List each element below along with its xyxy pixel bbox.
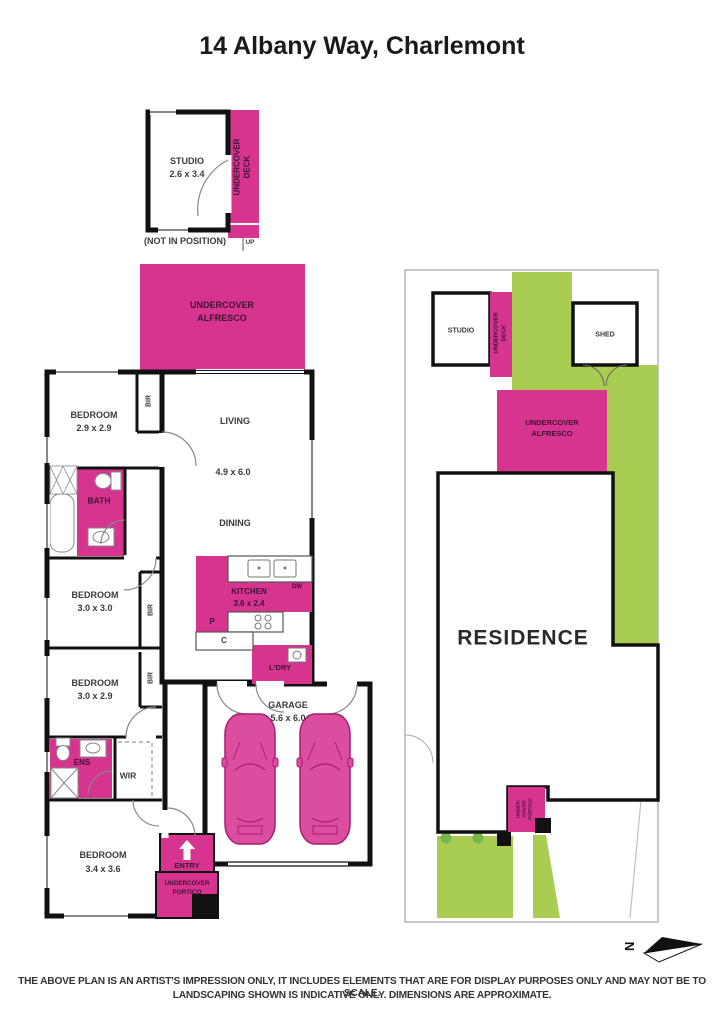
bir3-label: BIR [146,672,155,684]
entry-label: ENTRY [174,861,199,871]
site-studio-label: STUDIO [448,326,474,335]
portico-label: UNDERCOVER [165,880,210,888]
site-portico-label: UNDER- COVER PORTICO [517,798,536,820]
residence-label: RESIDENCE [457,624,589,651]
bir2-label: BIR [146,604,155,616]
kitchen-area [196,556,228,614]
bedroom1-label: BEDROOM [71,410,118,422]
toilet-icon [111,472,121,490]
alfresco-label: UNDERCOVER [190,300,254,312]
site-alfresco-label: UNDERCOVER [525,418,578,428]
page-title: 14 Albany Way, Charlemont [199,30,525,63]
car-icon [222,714,278,844]
bedroom4-label: BEDROOM [80,850,127,862]
site-shed-label: SHED [595,330,614,339]
bathtub-icon [50,494,74,552]
kitchen-dims: 3.6 x 2.4 [233,599,264,609]
wir-label: WIR [120,770,137,781]
car-icon [297,714,353,844]
living-dims: 4.9 x 6.0 [215,467,250,479]
bedroom4-dims: 3.4 x 3.6 [85,864,120,876]
site-deck-label: UNDERCOVER DECK [493,312,508,353]
north-arrow-icon: N [622,937,702,962]
bir1-label: BIR [144,395,153,407]
deck-label: UNDERCOVER DECK [233,139,254,196]
pantry-label: P [209,617,214,627]
dining-label: DINING [219,518,251,530]
bedroom2-dims: 3.0 x 3.0 [77,603,112,615]
pillar [192,894,217,918]
pillar [535,818,551,833]
bath-label: BATH [88,495,111,506]
garage-label: GARAGE [268,700,308,712]
site-plan [405,270,658,922]
laundry-label: L'DRY [269,663,291,673]
toilet-icon [56,738,70,746]
ens-label: ENS [74,758,90,768]
floorplan-page: N 14 Albany Way, Charlemont STUDIO 2.6 x… [0,0,724,1024]
cupboard-label: C [221,636,227,646]
bedroom1-dims: 2.9 x 2.9 [76,423,111,435]
bedroom3-label: BEDROOM [72,678,119,690]
main-floorplan [44,369,370,919]
bedroom3-dims: 3.0 x 2.9 [77,691,112,703]
kitchen-label: KITCHEN [231,587,267,597]
north-label: N [622,942,637,951]
linen-icon [50,466,77,494]
studio-label: STUDIO [170,156,204,168]
tree-icon [441,833,452,844]
living-label: LIVING [220,416,250,428]
bedroom2-label: BEDROOM [72,590,119,602]
tree-icon [473,833,484,844]
laundry-tub-icon [288,648,306,662]
pillar [497,832,511,846]
garage-dims: 5.6 x 6.0 [270,713,305,725]
disclaimer-line2: LANDSCAPING SHOWN IS INDICATIVE ONLY. DI… [11,989,713,1001]
not-in-position-note: (NOT IN POSITION) [144,236,226,248]
dw-label: DW [292,584,302,592]
studio-dims: 2.6 x 3.4 [169,169,204,181]
up-label: UP [245,239,254,247]
